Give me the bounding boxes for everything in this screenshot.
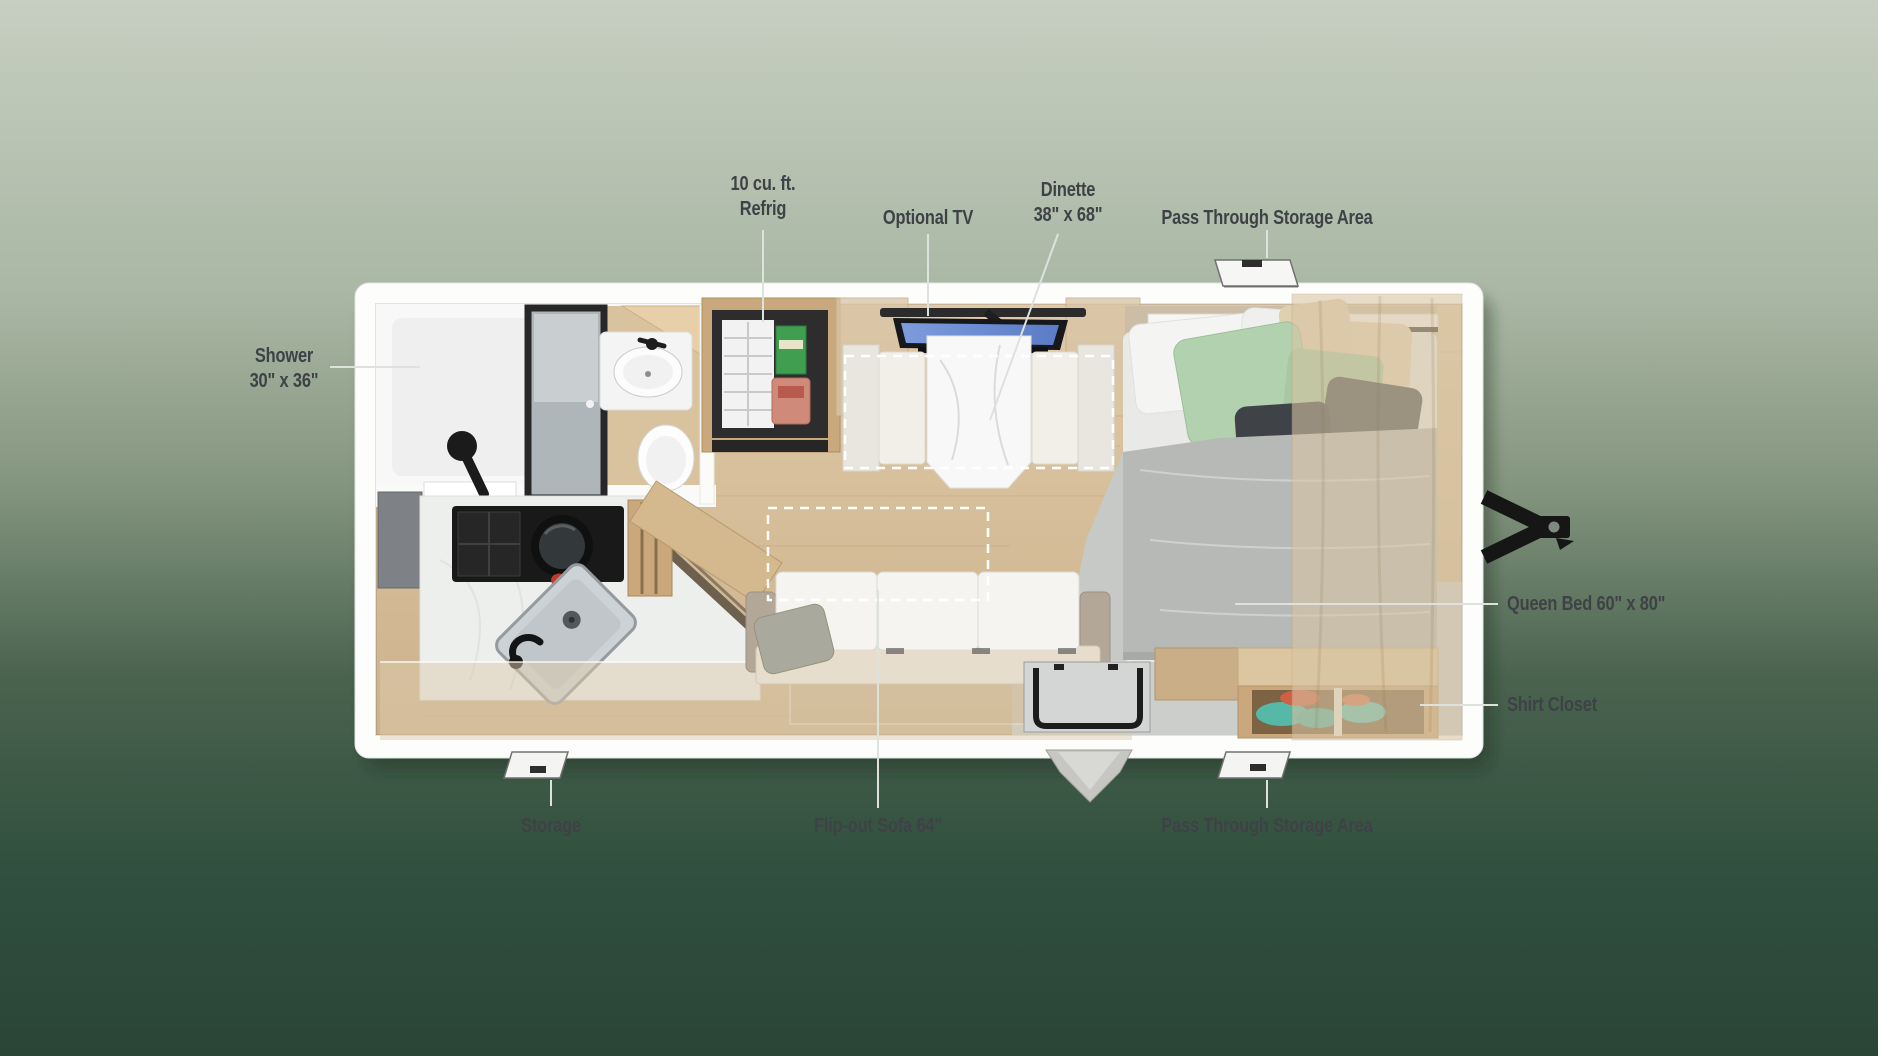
pass-through-overlay <box>1292 294 1462 740</box>
entry-door-icon <box>1024 662 1150 732</box>
label-storage: Storage <box>521 814 581 839</box>
label-shower-line1: Shower <box>250 344 319 369</box>
trailer-hitch-icon <box>1484 497 1574 557</box>
floorplan-drawing <box>0 0 1878 1056</box>
pass-through-hatch-icon <box>1218 752 1290 778</box>
dinette-table-icon <box>927 336 1031 488</box>
floorplan-canvas: { "labels": { "refrig": { "line1": "10 c… <box>0 0 1878 1056</box>
label-flip-out-sofa: Flip-out Sofa 64" <box>814 814 942 839</box>
label-queen-bed: Queen Bed 60" x 80" <box>1507 592 1665 617</box>
bathroom <box>376 304 716 507</box>
entry-step-icon <box>1046 750 1132 802</box>
label-dinette-line2: 38" x 68" <box>1034 203 1103 228</box>
label-dinette: Dinette 38" x 68" <box>1034 178 1103 228</box>
label-refrig: 10 cu. ft. Refrig <box>731 172 796 222</box>
label-shower-line2: 30" x 36" <box>250 369 319 394</box>
bath-sink-icon <box>600 332 692 410</box>
label-dinette-line1: Dinette <box>1034 178 1103 203</box>
refrigerator-icon <box>702 298 840 452</box>
label-shirt-closet: Shirt Closet <box>1507 693 1597 718</box>
label-refrig-line1: 10 cu. ft. <box>731 172 796 197</box>
shower-door <box>528 308 604 498</box>
bed-step-cabinet <box>1155 648 1243 700</box>
label-optional-tv: Optional TV <box>883 206 973 231</box>
kitchen-cabinet <box>378 492 422 588</box>
storage-hatch-icon <box>504 752 568 778</box>
label-shower: Shower 30" x 36" <box>250 344 319 394</box>
label-pass-through-bottom: Pass Through Storage Area <box>1161 814 1372 839</box>
label-refrig-line2: Refrig <box>731 197 796 222</box>
pass-through-hatch-icon <box>1215 260 1298 287</box>
label-pass-through-top: Pass Through Storage Area <box>1161 206 1372 231</box>
